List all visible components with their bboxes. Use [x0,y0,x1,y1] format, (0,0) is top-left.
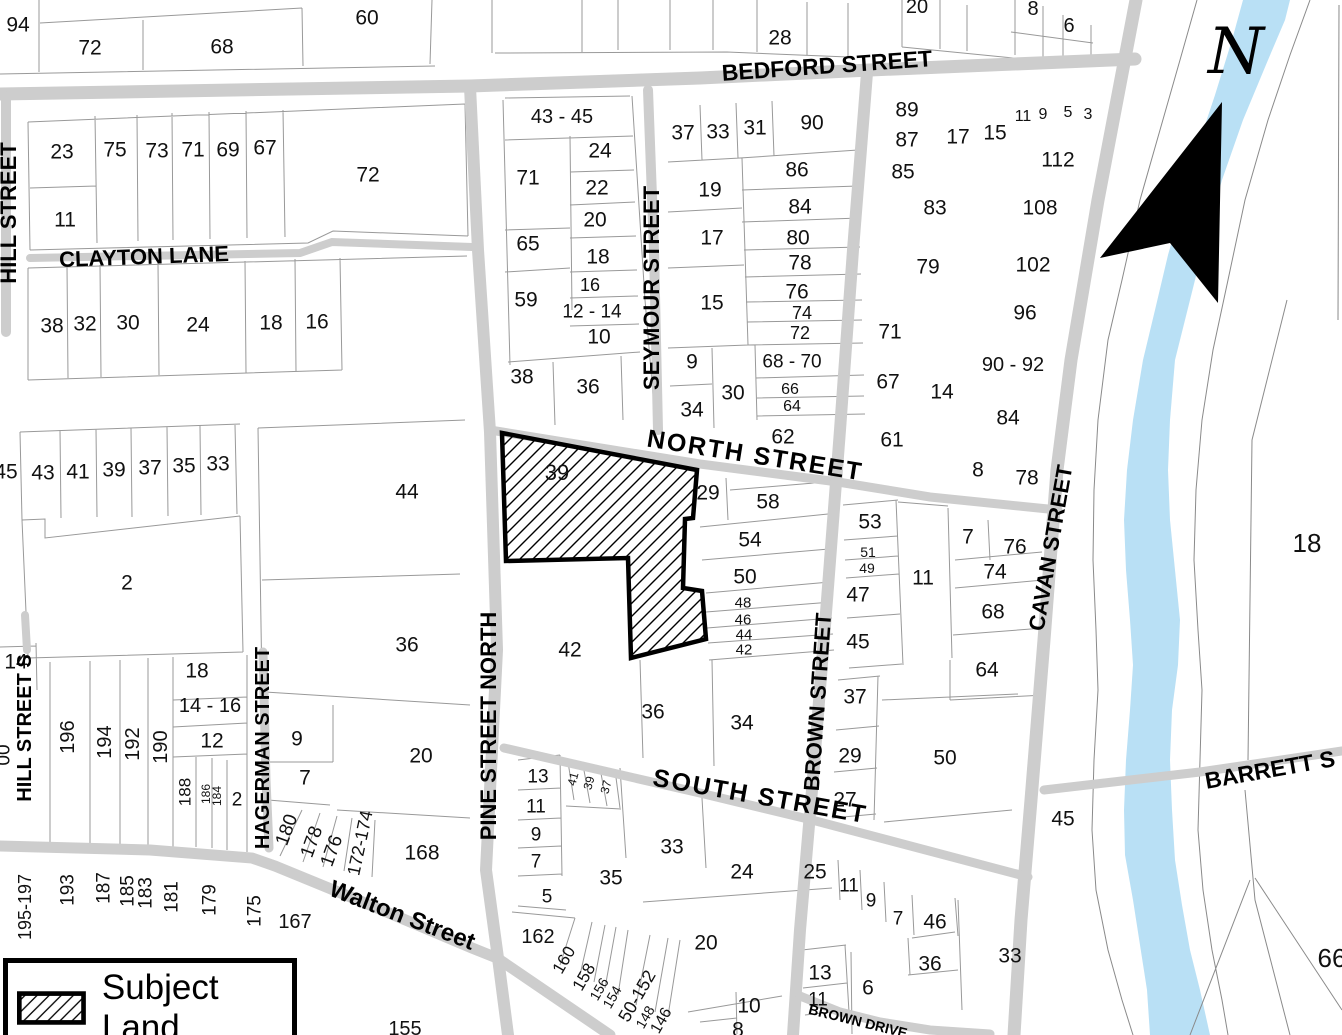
lot-label: 96 [1013,303,1036,324]
lot-label: 7 [531,853,542,872]
lot-label: 11 [912,568,934,589]
lot-label: 194 [95,725,115,758]
lot-label: 53 [858,512,881,533]
lot-label: 75 [103,140,126,161]
lot-label: 78 [1015,468,1038,489]
lot-label: 102 [1015,255,1050,276]
lot-label: 43 - 45 [531,107,593,127]
lot-label: 36 [641,702,664,723]
lot-label: 24 [588,141,611,162]
lot-label: 41 [565,771,580,787]
lot-label: 45 [1051,809,1074,830]
lot-label: 47 [846,585,869,606]
street-label: Walton Street [326,877,478,955]
lot-label: 46 [735,613,752,628]
lot-label: 37 [138,458,161,479]
lot-label: 71 [516,168,539,189]
lot-label: 18 [185,661,208,682]
lot-label: 8 [972,460,984,481]
lot-label: 29 [838,746,861,767]
lot-label: 16 [305,312,328,333]
lot-label: 23 [50,142,73,163]
lot-label: 2 [232,791,243,810]
lot-label: 37 [843,687,866,708]
lot-label: 181 [163,881,182,913]
lot-label: 44 [736,628,753,643]
lot-label: 45 [0,462,18,483]
lot-label: 13 [808,963,831,984]
street-label: BEDFORD STREET [721,47,933,85]
lot-label: 89 [895,100,918,121]
lot-label: 195-197 [16,874,34,940]
lot-label: 7 [893,910,904,929]
lot-label: 31 [743,118,766,139]
lot-label: 50 [933,748,956,769]
lot-label: 39 [545,462,569,484]
lot-label: 167 [278,912,311,932]
lot-label: 155 [388,1019,421,1035]
lot-label: 49 [859,561,875,575]
lot-label: 180 [273,812,302,848]
lot-label: 160 [550,943,579,976]
lot-label: 14 - 16 [179,696,241,716]
lot-label: 20 [409,746,432,767]
lot-label: 48 [735,596,752,611]
lot-label: 18 [1293,530,1322,556]
lot-label: 112 [1041,150,1074,171]
lot-label: 7 [962,527,974,548]
lot-label: 11 [1015,109,1032,125]
lot-label: 76 [785,282,808,303]
lot-label: 37 [671,123,694,144]
lot-label: 35 [172,456,195,477]
lot-label: 78 [788,253,811,274]
lot-label: 76 [1003,537,1026,558]
street-label: BARRETT S [1203,747,1337,793]
lot-label: 61 [880,430,903,451]
lot-label: 68 [210,37,233,58]
lot-label: 8 [732,1020,744,1035]
lot-label: 43 [31,463,54,484]
lot-label: 54 [738,530,761,551]
lot-label: 38 [40,316,63,337]
lot-label: 84 [996,408,1019,429]
lot-label: 67 [253,138,276,159]
lot-label: 44 [395,482,418,503]
lot-label: 9 [686,352,698,373]
lot-label: 162 [521,927,554,947]
street-label: PINE STREET NORTH [478,612,500,841]
lot-label: 33 [660,837,683,858]
lot-label: 6 [862,978,874,999]
lot-label: 90 - 92 [982,355,1044,375]
lot-label: 11 [526,798,546,817]
lot-label: 11 [839,877,859,896]
lot-label: 9 [531,826,542,845]
street-label: CLAYTON LANE [59,243,230,271]
lot-label: 33 [206,454,229,475]
lot-label: 20 [694,933,717,954]
lot-label: 33 [998,946,1021,967]
lot-label: 68 - 70 [762,353,821,372]
lot-label: 46 [923,912,946,933]
street-label: SEYMOUR STREET [641,186,663,390]
lot-label: 94 [6,15,29,36]
lot-label: 71 [181,140,204,161]
legend-label: Subject Land [102,968,292,1035]
lot-label: 5 [1064,105,1073,121]
lot-label: 6 [1063,16,1074,36]
lot-label: 69 [216,140,239,161]
lot-label: 17 [946,127,969,148]
lot-label: 22 [585,178,608,199]
lot-label: 86 [785,160,808,181]
lot-label: 41 [66,462,89,483]
lot-label: 10 [587,327,610,348]
subject-land-swatch-icon [17,990,86,1026]
lot-label: 24 [730,862,753,883]
lot-label: 34 [680,400,703,421]
legend: Subject Land [3,958,297,1035]
street-label: BROWN DRIVE [807,1002,909,1035]
lot-label: 36 [395,635,418,656]
lot-label: 192 [123,727,143,760]
lot-label: 50 [733,567,756,588]
lot-label: 14 [930,382,953,403]
street-label: HILL STREET S [15,654,35,801]
lot-label: 188 [177,778,194,806]
lot-label: 66 [781,382,799,398]
lot-label: 36 [918,954,941,975]
lot-label: 83 [923,198,946,219]
north-indicator-label: N [1208,15,1264,89]
lot-label: 35 [599,868,622,889]
map-labels: 9472686028208623757371696772113832302418… [0,0,1342,1035]
lot-label: 193 [59,874,78,906]
lot-label: 42 [558,640,581,661]
lot-label: 74 [983,562,1006,583]
lot-label: 38 [510,367,533,388]
lot-label: 187 [95,872,114,904]
lot-label: 65 [516,234,539,255]
lot-label: 18 [586,247,609,268]
street-label: SOUTH STREET [651,766,869,828]
lot-label: 168 [404,843,439,864]
lot-label: 71 [878,322,901,343]
lot-label: 7 [299,768,311,789]
lot-label: 15 [983,123,1006,144]
lot-label: 2 [121,573,133,594]
lot-label: 87 [895,130,918,151]
lot-label: 39 [102,460,125,481]
lot-label: 19 [698,180,721,201]
lot-label: 42 [736,643,753,658]
lot-label: 10 [737,996,760,1017]
lot-label: 80 [786,228,809,249]
lot-label: 12 - 14 [562,303,621,322]
lot-label: 51 [860,545,876,559]
lot-label: 73 [145,141,168,162]
lot-label: 172-174 [344,809,375,877]
lot-label: 37 [598,779,613,795]
lot-label: 85 [891,162,914,183]
lot-label: 24 [186,315,209,336]
lot-label: 90 [800,113,823,134]
lot-label: 12 [200,731,223,752]
lot-label: 72 [78,38,101,59]
lot-label: 32 [73,314,96,335]
lot-label: 72 [356,165,379,186]
lot-label: 59 [514,290,537,311]
lot-label: 33 [706,122,729,143]
lot-label: 15 [700,293,723,314]
lot-label: 74 [792,304,812,322]
lot-label: 58 [756,492,779,513]
lot-label: 39 [581,775,596,791]
lot-label: 179 [201,884,220,916]
street-label: NORTH STREET [645,427,865,486]
lot-label: 184 [211,786,223,806]
street-label: HAGERMAN STREET [253,647,273,849]
street-label: BROWN STREET [801,612,835,792]
lot-label: 25 [803,862,826,883]
lot-label: 9 [291,729,303,750]
lot-label: 20 [583,210,606,231]
lot-label: 30 [116,313,139,334]
lot-label: 8 [1027,0,1038,19]
lot-label: 45 [846,632,869,653]
lot-label: 68 [981,602,1004,623]
lot-label: 190 [151,730,171,763]
lot-label: 108 [1022,198,1057,219]
lot-label: 72 [790,324,810,342]
lot-label: 66 [1318,945,1342,971]
lot-label: 20 [906,0,928,17]
lot-label: 196 [58,720,78,753]
lot-label: 175 [246,895,265,927]
lot-label: 3 [1084,107,1093,123]
lot-label: 17 [700,228,723,249]
lot-label: 9 [1039,107,1048,123]
lot-label: 11 [54,210,76,231]
parcel-map: 9472686028208623757371696772113832302418… [0,0,1342,1035]
lot-label: 67 [876,372,899,393]
lot-label: 36 [576,377,599,398]
lot-label: 00 [0,744,14,765]
lot-label: 30 [721,383,744,404]
lot-label: 60 [355,8,378,29]
lot-label: 16 [580,276,600,294]
lot-label: 64 [975,660,998,681]
lot-label: 5 [542,888,553,907]
lot-label: 183 [137,877,156,909]
lot-label: 28 [768,28,791,49]
lot-label: 64 [783,399,801,415]
street-label: HILL STREET [0,142,20,283]
lot-label: 9 [866,892,877,911]
lot-label: 34 [730,713,753,734]
lot-label: 84 [788,197,811,218]
lot-label: 79 [916,257,939,278]
lot-label: 18 [259,313,282,334]
lot-label: 13 [527,768,548,787]
lot-label: 29 [696,483,719,504]
